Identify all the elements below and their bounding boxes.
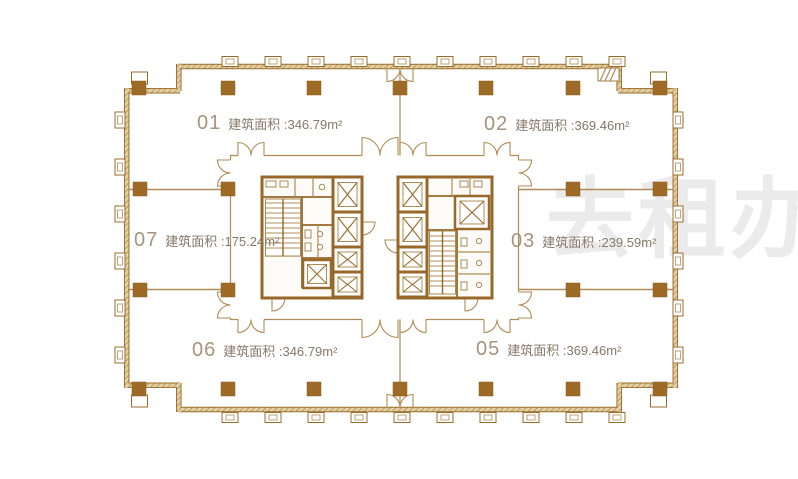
utility-shaft-symbol [598, 68, 619, 81]
right-core-service-lift [455, 196, 489, 229]
left-core-service-lift [303, 260, 331, 288]
unit-area: 建筑面积 :369.46m² [507, 340, 621, 359]
unit-label-05: 05 建筑面积 :369.46m² [476, 338, 621, 361]
unit-area: 建筑面积 :175.24m² [165, 231, 279, 250]
unit-area: 建筑面积 :369.46m² [515, 115, 629, 134]
left-core-elevators [333, 177, 362, 297]
unit-number: 05 [476, 338, 500, 361]
unit-label-02: 02 建筑面积 :369.46m² [484, 113, 629, 136]
unit-number: 03 [511, 230, 535, 253]
unit-area: 建筑面积 :239.59m² [542, 232, 656, 251]
floor-plan-drawing [0, 0, 798, 479]
unit-label-07: 07 建筑面积 :175.24m² [134, 229, 279, 252]
right-core [398, 177, 492, 298]
unit-number: 02 [484, 113, 508, 136]
unit-number: 07 [134, 229, 158, 252]
unit-label-06: 06 建筑面积 :346.79m² [192, 339, 337, 362]
unit-number: 01 [197, 112, 221, 135]
unit-area: 建筑面积 :346.79m² [223, 341, 337, 360]
unit-area: 建筑面积 :346.79m² [228, 114, 342, 133]
unit-number: 06 [192, 339, 216, 362]
floor-plan-page: 去租办 [0, 0, 798, 479]
right-core-elevators [398, 177, 427, 297]
right-core-stair [430, 231, 456, 294]
unit-label-01: 01 建筑面积 :346.79m² [197, 112, 342, 135]
unit-label-03: 03 建筑面积 :239.59m² [511, 230, 656, 253]
